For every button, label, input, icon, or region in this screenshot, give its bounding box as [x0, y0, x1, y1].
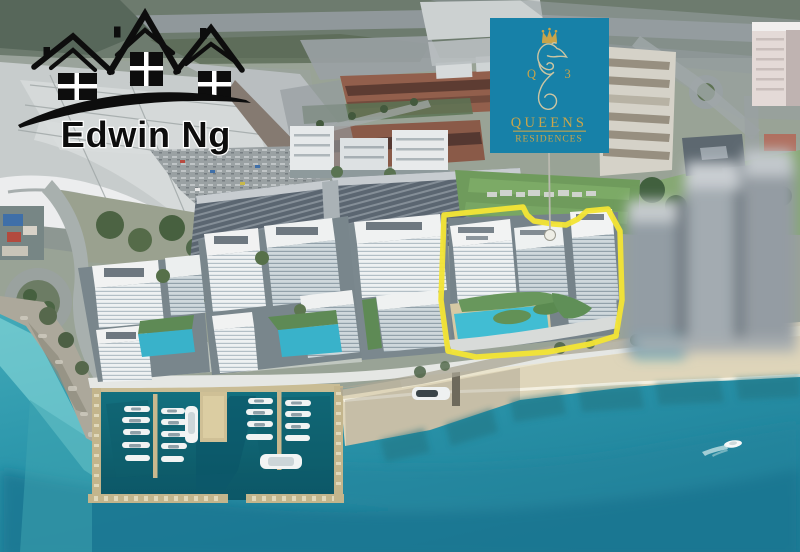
svg-text:Q: Q: [527, 67, 536, 81]
svg-text:RESIDENCES: RESIDENCES: [515, 135, 583, 145]
svg-text:Edwin Ng: Edwin Ng: [61, 114, 231, 155]
svg-text:3: 3: [565, 67, 571, 81]
svg-text:QUEENS: QUEENS: [511, 115, 587, 131]
